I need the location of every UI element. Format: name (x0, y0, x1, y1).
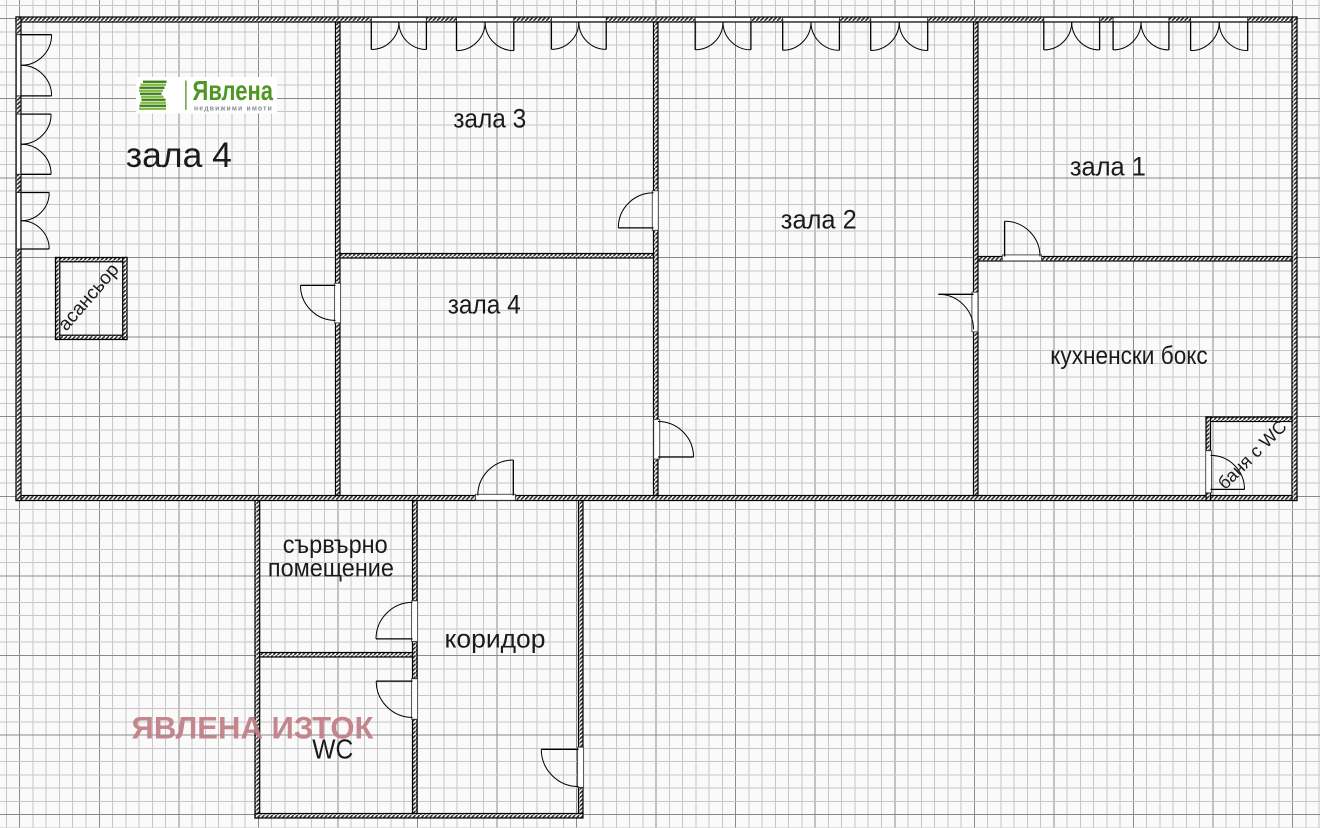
svg-text:зала 4: зала 4 (126, 136, 232, 175)
svg-text:коридор: коридор (445, 624, 546, 654)
svg-text:Явлена: Явлена (193, 75, 274, 106)
svg-text:зала 2: зала 2 (781, 205, 857, 235)
svg-text:зала 3: зала 3 (453, 103, 526, 133)
svg-text:зала 1: зала 1 (1070, 152, 1146, 182)
svg-text:недвижими имоти: недвижими имоти (194, 105, 273, 112)
svg-text:кухненски бокс: кухненски бокс (1050, 342, 1208, 370)
svg-text:ЯВЛЕНА ИЗТОК: ЯВЛЕНА ИЗТОК (132, 709, 375, 745)
svg-text:зала 4: зала 4 (448, 290, 521, 320)
svg-text:помещение: помещение (268, 554, 394, 582)
